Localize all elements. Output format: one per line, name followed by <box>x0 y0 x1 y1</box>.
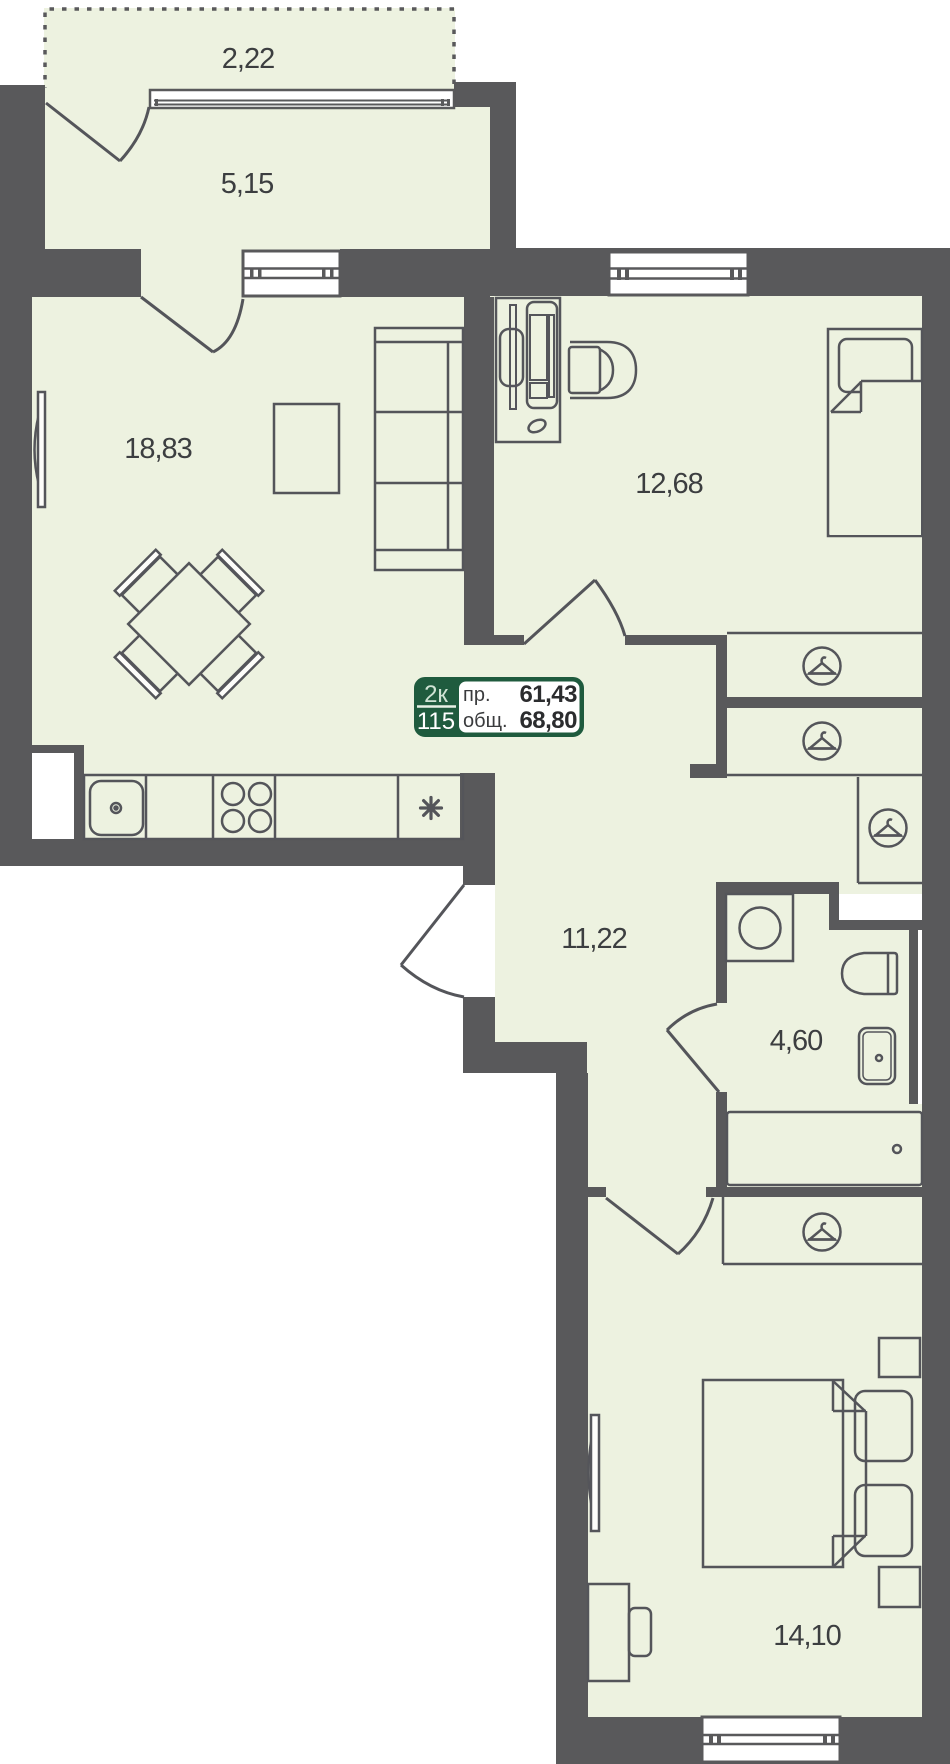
svg-text:2к: 2к <box>424 681 448 708</box>
svg-text:115: 115 <box>417 708 455 735</box>
svg-text:5,15: 5,15 <box>221 168 273 200</box>
svg-text:пр.: пр. <box>463 684 491 706</box>
svg-text:61,43: 61,43 <box>519 681 577 708</box>
svg-text:14,10: 14,10 <box>773 1620 841 1652</box>
svg-text:2,22: 2,22 <box>222 43 274 75</box>
svg-text:68,80: 68,80 <box>519 707 577 734</box>
svg-text:11,22: 11,22 <box>561 923 626 955</box>
svg-text:общ.: общ. <box>463 710 508 732</box>
svg-text:18,83: 18,83 <box>124 433 192 465</box>
svg-text:12,68: 12,68 <box>635 468 703 500</box>
svg-text:4,60: 4,60 <box>770 1025 822 1057</box>
